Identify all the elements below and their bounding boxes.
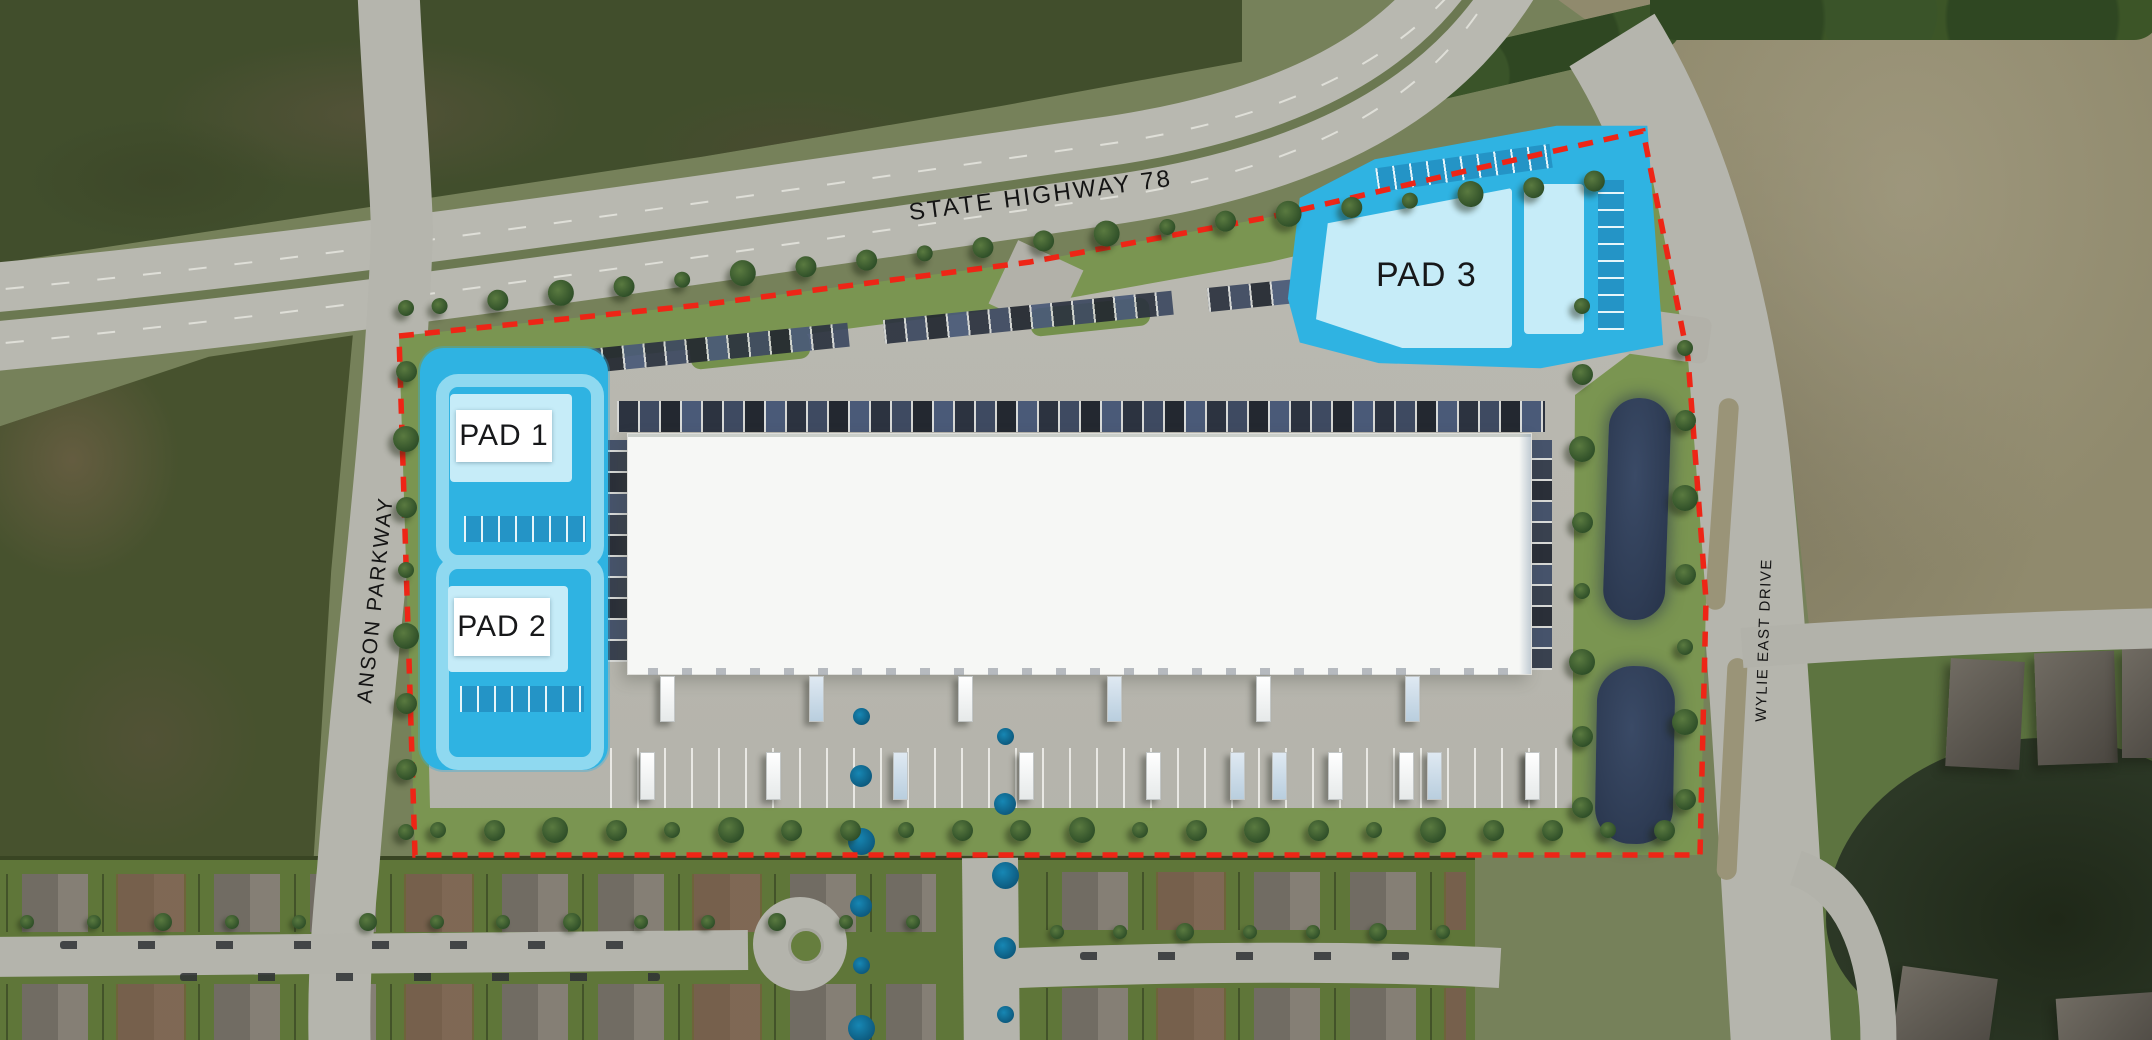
tree-cluster-west (392, 300, 420, 840)
tree-cluster-east (1672, 340, 1698, 810)
tree-cluster-south (430, 810, 1675, 850)
tree-cluster-east (1568, 298, 1596, 818)
tree-cluster-residential (20, 912, 920, 932)
tree-cluster-residential (1050, 922, 1450, 942)
site-plan-map: PAD 1 PAD 2 PAD 3 (0, 0, 2152, 1040)
property-boundary-line (0, 0, 2152, 1040)
